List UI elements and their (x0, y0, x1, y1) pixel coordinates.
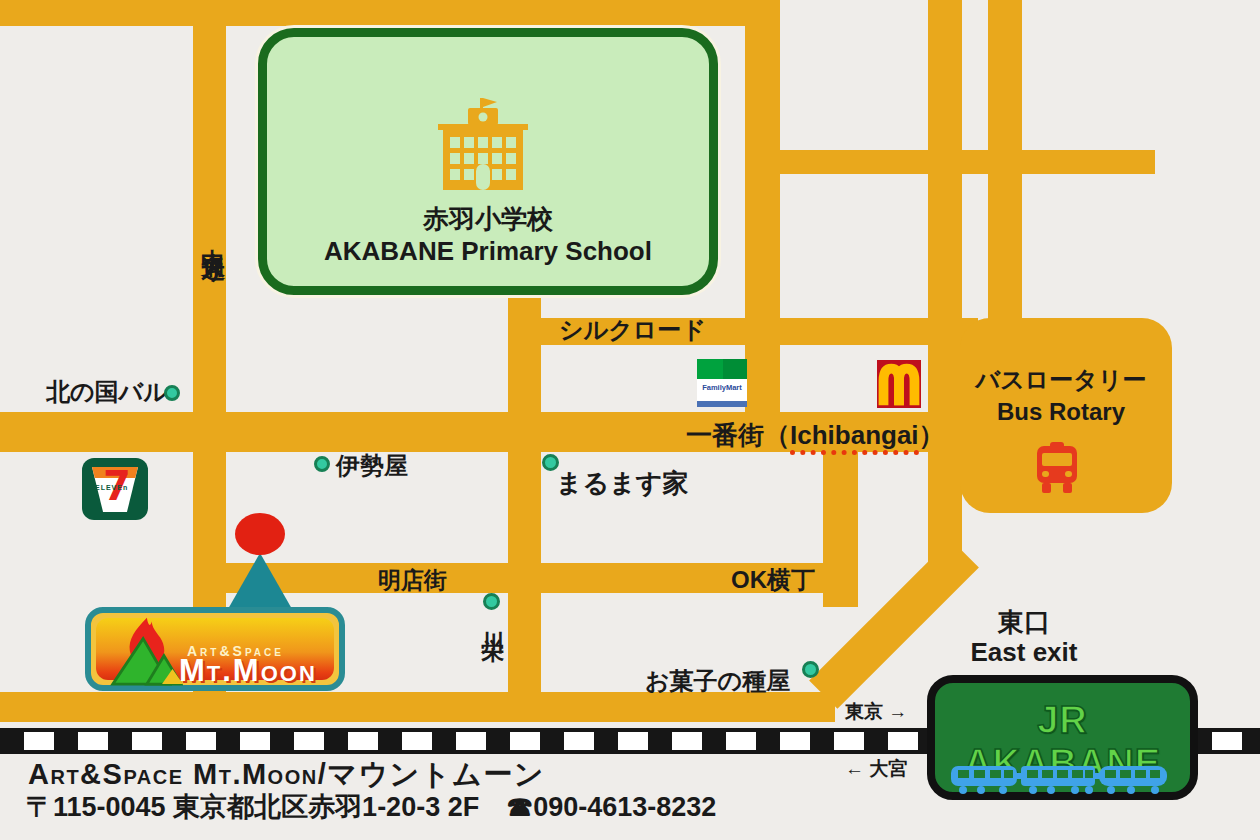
street-chuo-dori: 中央通り (192, 229, 226, 272)
familymart-green-bar (697, 359, 747, 379)
school-icon (430, 96, 536, 190)
bus-rotary-label-jp: バスロータリー (975, 367, 1147, 393)
mtmoon-logo-icon (107, 614, 183, 686)
street-silk-road: シルクロード (559, 317, 706, 343)
seven-eleven-wordmark: ELEVEn (95, 484, 128, 491)
east-exit-jp: 東口 (958, 608, 1090, 637)
kitanokuni-dot (164, 385, 180, 401)
landmark-okashi: お菓子の種屋 (645, 668, 790, 694)
school-name-en: AKABANE Primary School (288, 237, 688, 266)
direction-omiya: ← 大宮 (845, 759, 907, 780)
road-top (0, 0, 780, 26)
street-meitengai: 明店街 (378, 568, 447, 593)
jr-akabane-station: JR AKABANE (927, 675, 1198, 800)
street-ok-yokocho: OK横丁 (731, 567, 815, 593)
road-bottom (0, 692, 835, 722)
footer-address-phone: 〒115-0045 東京都北区赤羽1-20-3 2F ☎090-4613-823… (26, 789, 716, 825)
school-name-jp: 赤羽小学校 (358, 205, 618, 234)
landmark-marumasuya: まるます家 (556, 469, 688, 498)
access-map: 赤羽小学校 AKABANE Primary School 中央通り シルクロード… (0, 0, 1260, 840)
street-ichibangai: 一番街（Ichibangai） (686, 421, 945, 450)
venue-pointer-icon (228, 553, 292, 609)
road-vertical-east-1 (928, 0, 962, 575)
road-upper-cross (775, 150, 1155, 174)
mtmoon-name-text: Mt.Moon (179, 653, 317, 689)
road-vertical-mid (745, 0, 780, 452)
familymart-blue-bar (697, 401, 747, 407)
mtmoon-sign: Art&Space Mt.Moon (85, 607, 345, 691)
iseya-dot (314, 456, 330, 472)
street-ichibangai-close: ） (919, 420, 945, 450)
landmark-iseya: 伊勢屋 (336, 453, 408, 479)
street-ichibangai-jp: 一番街（ (686, 420, 790, 450)
train-icon (949, 763, 1171, 795)
golden-arches-icon (877, 360, 921, 408)
familymart-wordmark: FamilyMart (697, 383, 747, 392)
east-exit-en: East exit (958, 638, 1090, 667)
familymart-icon: FamilyMart (697, 359, 747, 407)
landmark-kitanokuni: 北の国バル (46, 379, 168, 405)
direction-tokyo: 東京 → (845, 702, 907, 723)
okashi-dot (802, 661, 819, 678)
bus-rotary-label-en: Bus Rotary (975, 399, 1147, 425)
road-vertical-west (508, 295, 541, 722)
landmark-kawaei: 川栄 (477, 612, 505, 628)
mcdonalds-icon (877, 360, 921, 408)
bus-icon (1034, 441, 1080, 495)
venue-location-marker (235, 513, 285, 555)
street-ichibangai-en: Ichibangai (790, 420, 919, 455)
seven-eleven-icon: 7 ELEVEn (82, 458, 148, 520)
kawaei-dot (483, 593, 500, 610)
